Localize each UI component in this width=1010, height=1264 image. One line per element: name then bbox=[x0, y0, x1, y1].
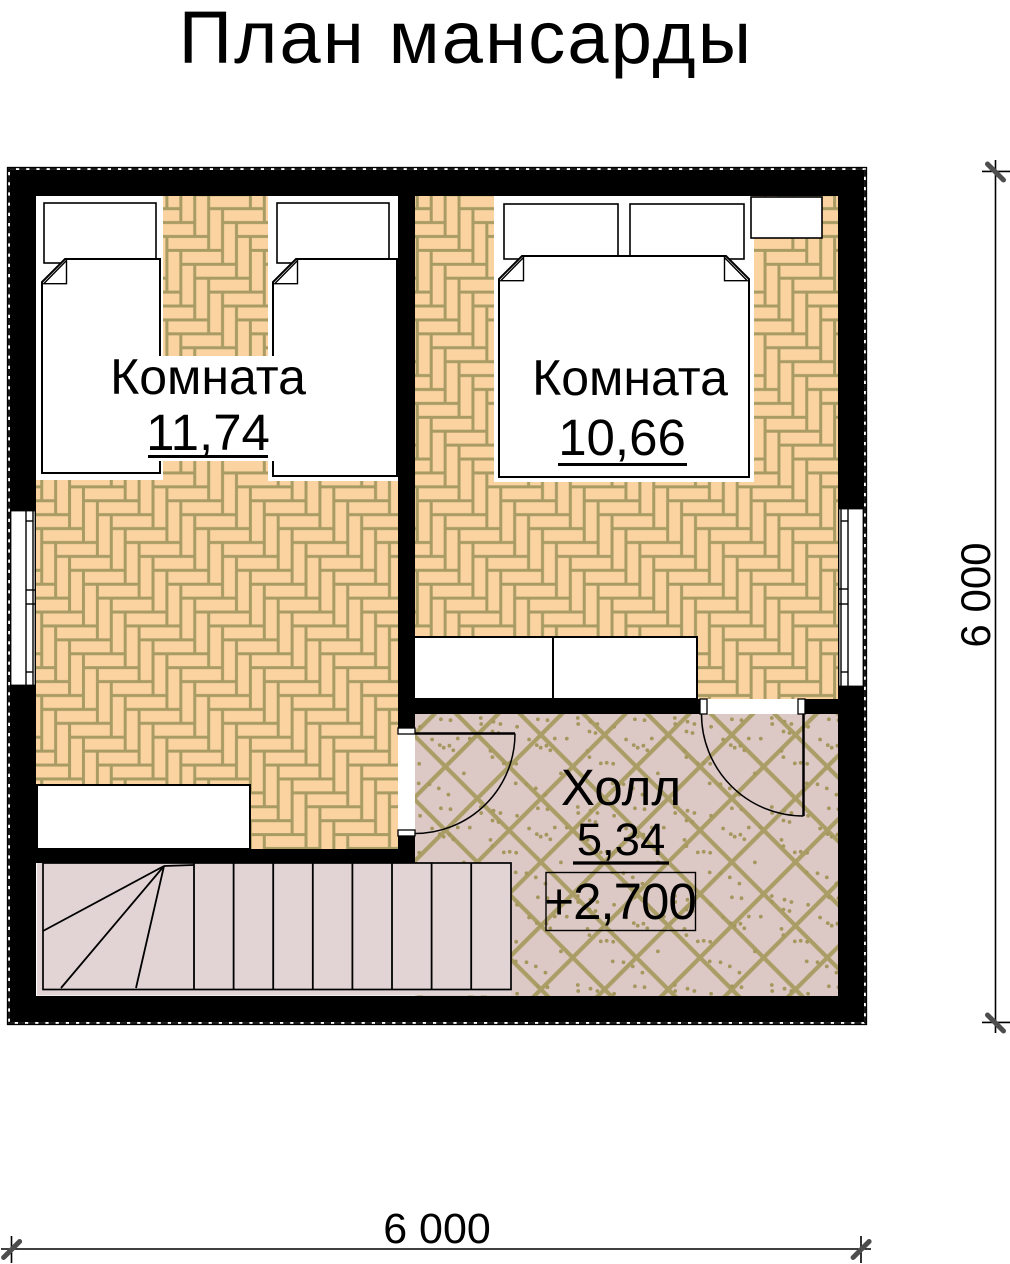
svg-text:11,74: 11,74 bbox=[146, 404, 270, 461]
svg-text:Комната: Комната bbox=[110, 349, 306, 405]
svg-text:10,66: 10,66 bbox=[558, 409, 686, 466]
svg-text:6 000: 6 000 bbox=[952, 542, 999, 647]
svg-text:Комната: Комната bbox=[532, 350, 728, 406]
svg-text:Холл: Холл bbox=[561, 759, 681, 816]
svg-text:+2,700: +2,700 bbox=[544, 873, 695, 930]
svg-text:5,34: 5,34 bbox=[577, 814, 666, 865]
svg-text:6 000: 6 000 bbox=[383, 1205, 491, 1253]
svg-text:План мансарды: План мансарды bbox=[179, 0, 753, 79]
